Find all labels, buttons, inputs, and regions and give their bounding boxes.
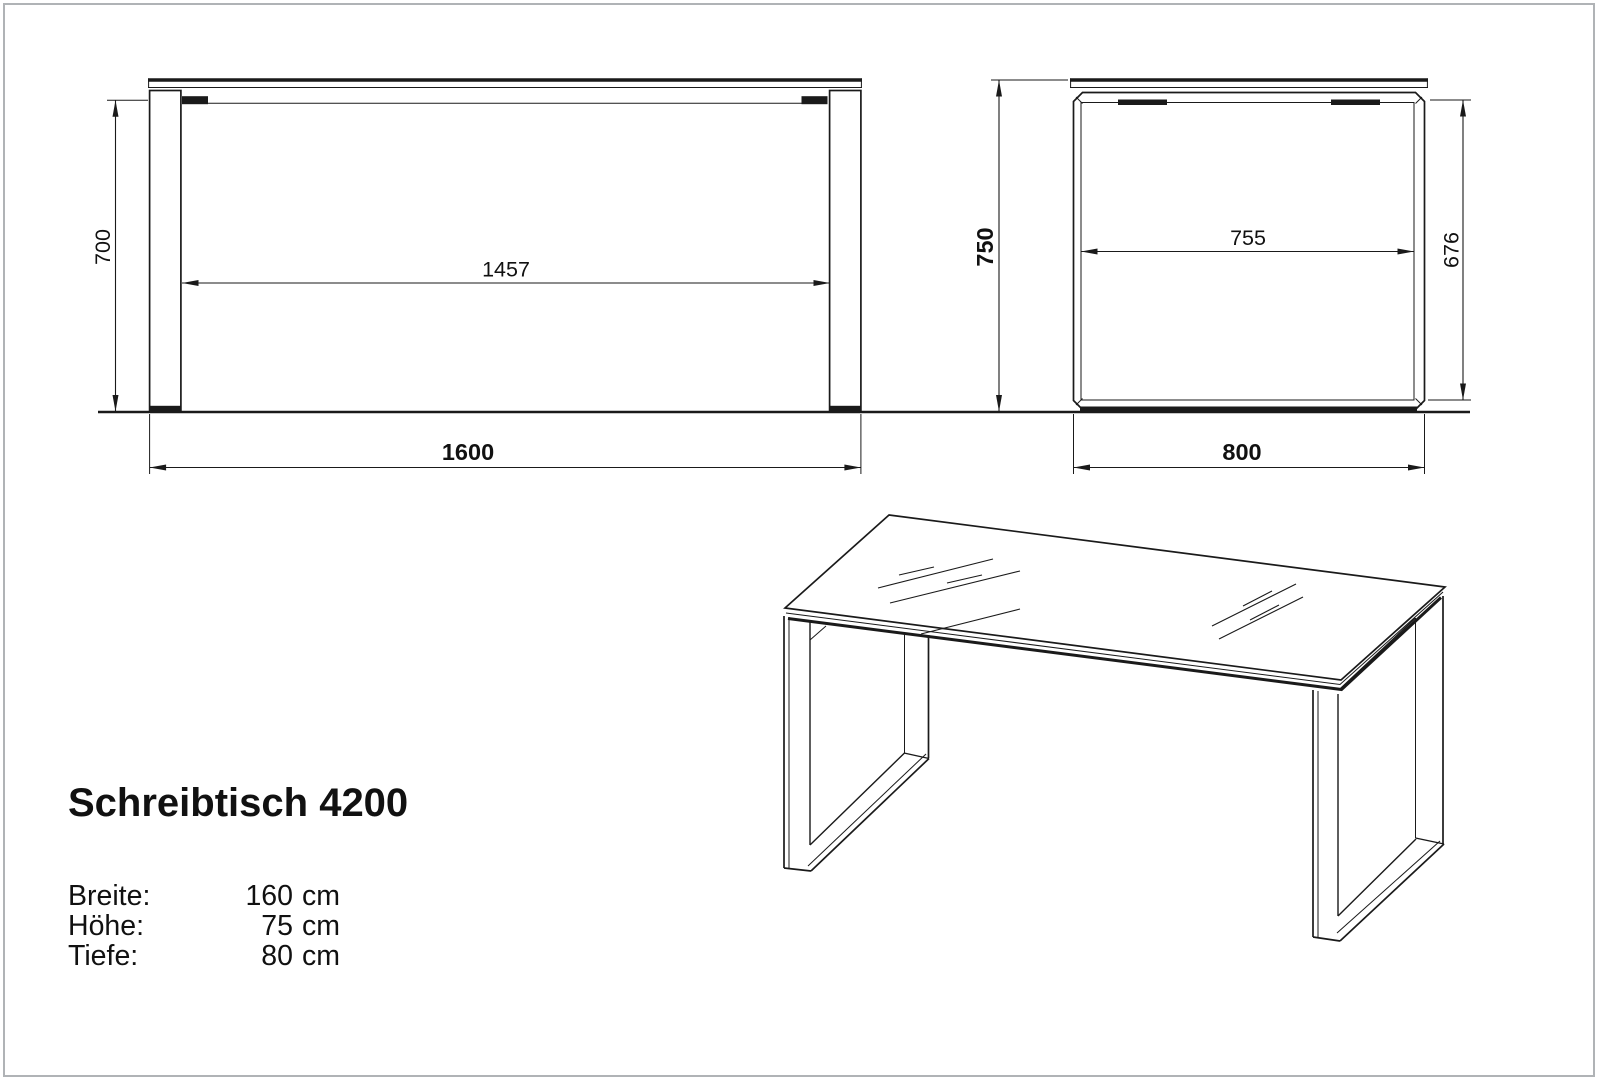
left-leg-bottom-top-edge bbox=[810, 753, 905, 845]
front-right-leg-foot bbox=[829, 406, 861, 412]
reflection-line bbox=[921, 609, 1020, 634]
side-frame-chamfer-br bbox=[1416, 399, 1423, 406]
left-leg-opening-top bbox=[810, 626, 826, 640]
spec-row-hoehe: Höhe:75cm bbox=[68, 911, 340, 941]
side-frame-chamfer-tl bbox=[1076, 97, 1083, 104]
spec-value: 160 bbox=[218, 881, 293, 911]
side-frame-chamfer-bl bbox=[1076, 399, 1083, 406]
front-dim-total-width: 1600 bbox=[150, 414, 861, 474]
side-frame-chamfer-tr bbox=[1416, 97, 1423, 104]
front-left-bracket bbox=[182, 96, 208, 104]
spec-value: 80 bbox=[218, 941, 293, 971]
side-bracket-left bbox=[1118, 100, 1167, 106]
left-leg-foot-edge bbox=[784, 868, 811, 871]
spec-list: Breite:160cm Höhe:75cm Tiefe:80cm bbox=[68, 881, 340, 971]
side-dim755-label: 755 bbox=[1230, 226, 1266, 250]
right-leg-bottom-top-edge bbox=[1338, 839, 1416, 916]
left-leg-rear-foot-cap bbox=[904, 753, 929, 759]
front-dim1600-label: 1600 bbox=[442, 439, 494, 465]
side-dim800-label: 800 bbox=[1222, 439, 1261, 465]
front-right-leg bbox=[830, 91, 861, 411]
right-leg-foot-edge bbox=[1313, 937, 1340, 941]
spec-label: Höhe: bbox=[68, 911, 218, 941]
front-dim700-label: 700 bbox=[91, 229, 115, 265]
spec-unit: cm bbox=[302, 941, 340, 971]
spec-row-tiefe: Tiefe:80cm bbox=[68, 941, 340, 971]
side-foot-strip bbox=[1080, 407, 1417, 413]
spec-unit: cm bbox=[302, 911, 340, 941]
spec-value: 75 bbox=[218, 911, 293, 941]
front-right-bracket bbox=[802, 96, 828, 104]
persp-left-leg bbox=[784, 616, 929, 871]
front-dim-inner-width: 1457 bbox=[182, 258, 830, 284]
glass-reflection-marks bbox=[878, 559, 1303, 639]
reflection-line bbox=[899, 567, 934, 575]
reflection-line bbox=[890, 571, 1020, 603]
front-view: 700 1457 1600 bbox=[91, 78, 862, 474]
side-dim-total-height: 750 bbox=[972, 80, 1068, 412]
reflection-line bbox=[1212, 584, 1296, 626]
front-dim-leg-height: 700 bbox=[91, 100, 148, 411]
left-leg-bottom-outer-edge bbox=[811, 759, 929, 872]
technical-drawing-page: 700 1457 1600 bbox=[0, 0, 1600, 1085]
side-dim-total-depth: 800 bbox=[1074, 414, 1425, 474]
persp-top-edge-thin bbox=[786, 592, 1443, 685]
reflection-line bbox=[878, 559, 993, 588]
side-bracket-right bbox=[1331, 100, 1380, 106]
spec-label: Breite: bbox=[68, 881, 218, 911]
persp-top-edge-band bbox=[788, 598, 1441, 690]
side-dim-inner-height: 676 bbox=[1428, 100, 1471, 400]
right-leg-opening-top bbox=[1340, 618, 1416, 689]
side-dim750-label: 750 bbox=[972, 227, 998, 266]
spec-row-breite: Breite:160cm bbox=[68, 881, 340, 911]
right-leg-bottom-outer-edge bbox=[1340, 844, 1444, 941]
front-left-leg bbox=[150, 91, 181, 411]
side-view: 750 755 676 800 bbox=[972, 78, 1471, 474]
reflection-line bbox=[1219, 597, 1303, 639]
front-dim1457-label: 1457 bbox=[482, 258, 530, 282]
product-title: Schreibtisch 4200 bbox=[68, 781, 408, 826]
persp-right-leg bbox=[1313, 596, 1444, 941]
perspective-view bbox=[784, 515, 1445, 941]
reflection-line bbox=[1250, 605, 1279, 620]
left-leg-bottom-mid-edge bbox=[808, 754, 926, 866]
side-dim676-label: 676 bbox=[1440, 232, 1464, 268]
side-dim-inner-depth: 755 bbox=[1081, 226, 1414, 252]
spec-label: Tiefe: bbox=[68, 941, 218, 971]
front-left-leg-foot bbox=[149, 406, 181, 412]
right-leg-bottom-mid-edge bbox=[1337, 841, 1440, 933]
spec-unit: cm bbox=[302, 881, 340, 911]
